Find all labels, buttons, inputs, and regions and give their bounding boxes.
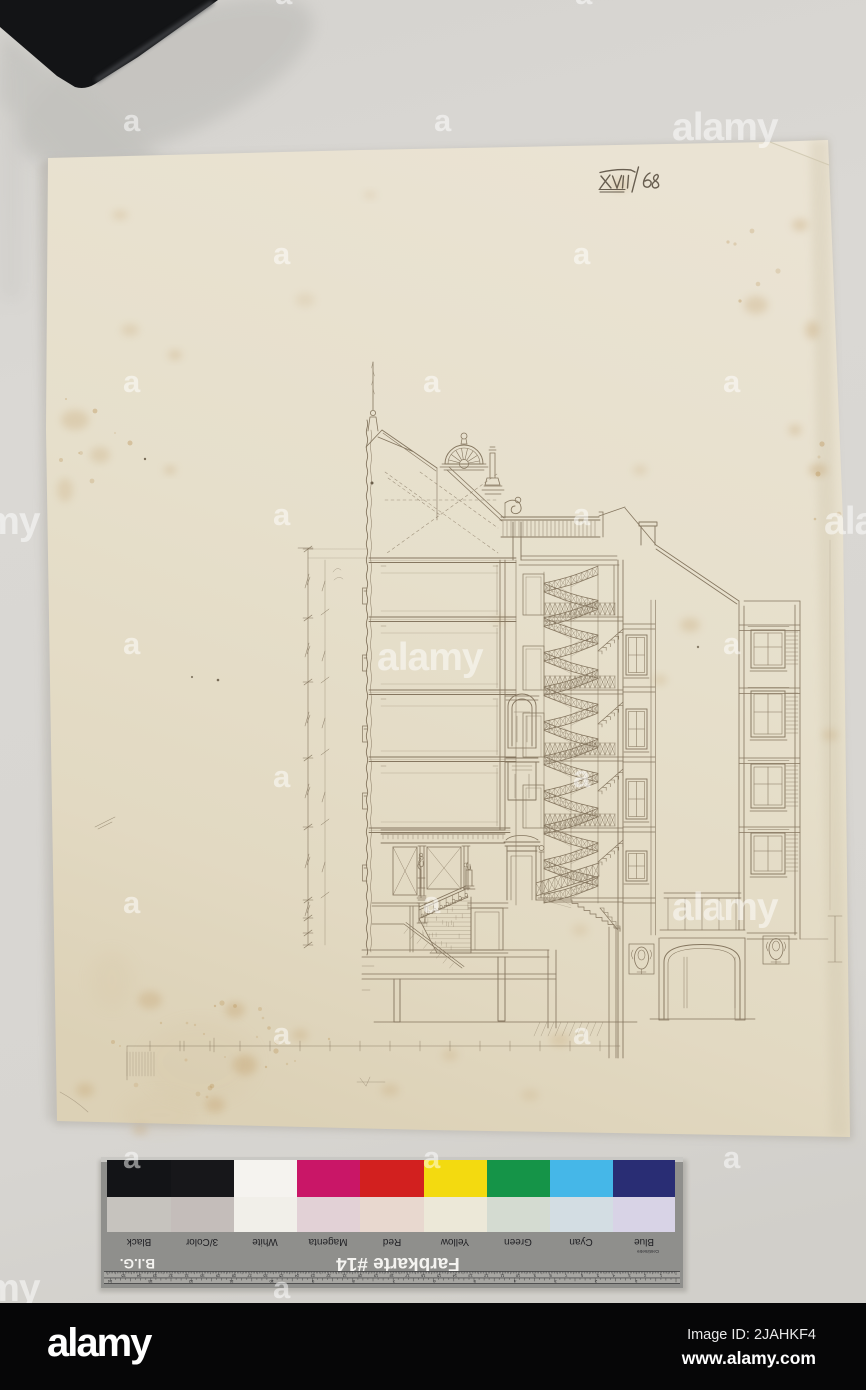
svg-text:Cyan: Cyan — [569, 1236, 592, 1247]
svg-text:Image ID: 2JAHKF4: Image ID: 2JAHKF4 — [687, 1327, 816, 1343]
svg-text:28: 28 — [231, 1273, 236, 1278]
svg-text:a: a — [573, 497, 591, 532]
svg-text:alamy: alamy — [377, 636, 484, 679]
svg-text:a: a — [123, 626, 141, 661]
svg-text:Centimetre: Centimetre — [637, 1249, 660, 1254]
svg-text:a: a — [123, 885, 141, 920]
svg-text:Green: Green — [504, 1236, 532, 1247]
svg-text:a: a — [275, 0, 293, 11]
svg-text:13: 13 — [148, 1279, 153, 1284]
svg-text:13: 13 — [468, 1273, 473, 1278]
svg-text:Farbkarte #14: Farbkarte #14 — [336, 1253, 460, 1274]
svg-text:34: 34 — [136, 1273, 141, 1278]
svg-text:Black: Black — [126, 1236, 151, 1247]
svg-text:Yellow: Yellow — [440, 1236, 469, 1247]
svg-text:a: a — [573, 1016, 591, 1051]
svg-text:a: a — [573, 236, 591, 271]
svg-text:a: a — [723, 626, 741, 661]
svg-text:alamy: alamy — [0, 500, 41, 543]
svg-text:12: 12 — [188, 1279, 193, 1284]
svg-text:a: a — [273, 759, 291, 794]
svg-text:a: a — [123, 103, 141, 138]
svg-text:a: a — [123, 1140, 141, 1175]
svg-text:14: 14 — [107, 1279, 112, 1284]
svg-text:10: 10 — [515, 1273, 520, 1278]
svg-text:29: 29 — [215, 1273, 220, 1278]
svg-text:a: a — [273, 1270, 291, 1305]
svg-text:a: a — [434, 103, 452, 138]
svg-text:19: 19 — [373, 1273, 378, 1278]
svg-text:Blue: Blue — [634, 1236, 654, 1247]
svg-text:a: a — [423, 1140, 441, 1175]
svg-text:a: a — [723, 1140, 741, 1175]
svg-text:a: a — [273, 236, 291, 271]
svg-text:alamy: alamy — [672, 106, 779, 149]
svg-text:14: 14 — [452, 1273, 457, 1278]
svg-text:27: 27 — [247, 1273, 252, 1278]
svg-text:B.I.G.: B.I.G. — [120, 1256, 155, 1271]
svg-text:a: a — [123, 364, 141, 399]
svg-text:a: a — [723, 364, 741, 399]
svg-text:26: 26 — [262, 1273, 267, 1278]
svg-text:3/Color: 3/Color — [185, 1236, 218, 1247]
svg-text:White: White — [252, 1236, 278, 1247]
svg-text:21: 21 — [341, 1273, 346, 1278]
svg-text:31: 31 — [184, 1273, 189, 1278]
svg-text:33: 33 — [152, 1273, 157, 1278]
svg-text:22: 22 — [326, 1273, 331, 1278]
svg-text:30: 30 — [199, 1273, 204, 1278]
svg-text:24: 24 — [294, 1273, 299, 1278]
svg-text:Magenta: Magenta — [308, 1236, 347, 1247]
svg-text:a: a — [573, 759, 591, 794]
svg-text:16: 16 — [420, 1273, 425, 1278]
svg-text:a: a — [273, 497, 291, 532]
svg-text:23: 23 — [310, 1273, 315, 1278]
svg-text:32: 32 — [168, 1273, 173, 1278]
svg-text:35: 35 — [120, 1273, 125, 1278]
svg-text:alamy: alamy — [672, 886, 779, 929]
svg-text:alamy: alamy — [824, 500, 866, 543]
svg-text:a: a — [575, 0, 593, 11]
svg-text:a: a — [273, 1016, 291, 1051]
svg-text:www.alamy.com: www.alamy.com — [681, 1348, 816, 1368]
svg-text:18: 18 — [389, 1273, 394, 1278]
svg-text:Red: Red — [383, 1236, 401, 1247]
svg-text:a: a — [423, 364, 441, 399]
svg-text:alamy: alamy — [47, 1321, 153, 1365]
svg-text:15: 15 — [436, 1273, 441, 1278]
svg-text:20: 20 — [357, 1273, 362, 1278]
svg-text:a: a — [423, 885, 441, 920]
svg-text:12: 12 — [483, 1273, 488, 1278]
svg-text:17: 17 — [404, 1273, 409, 1278]
